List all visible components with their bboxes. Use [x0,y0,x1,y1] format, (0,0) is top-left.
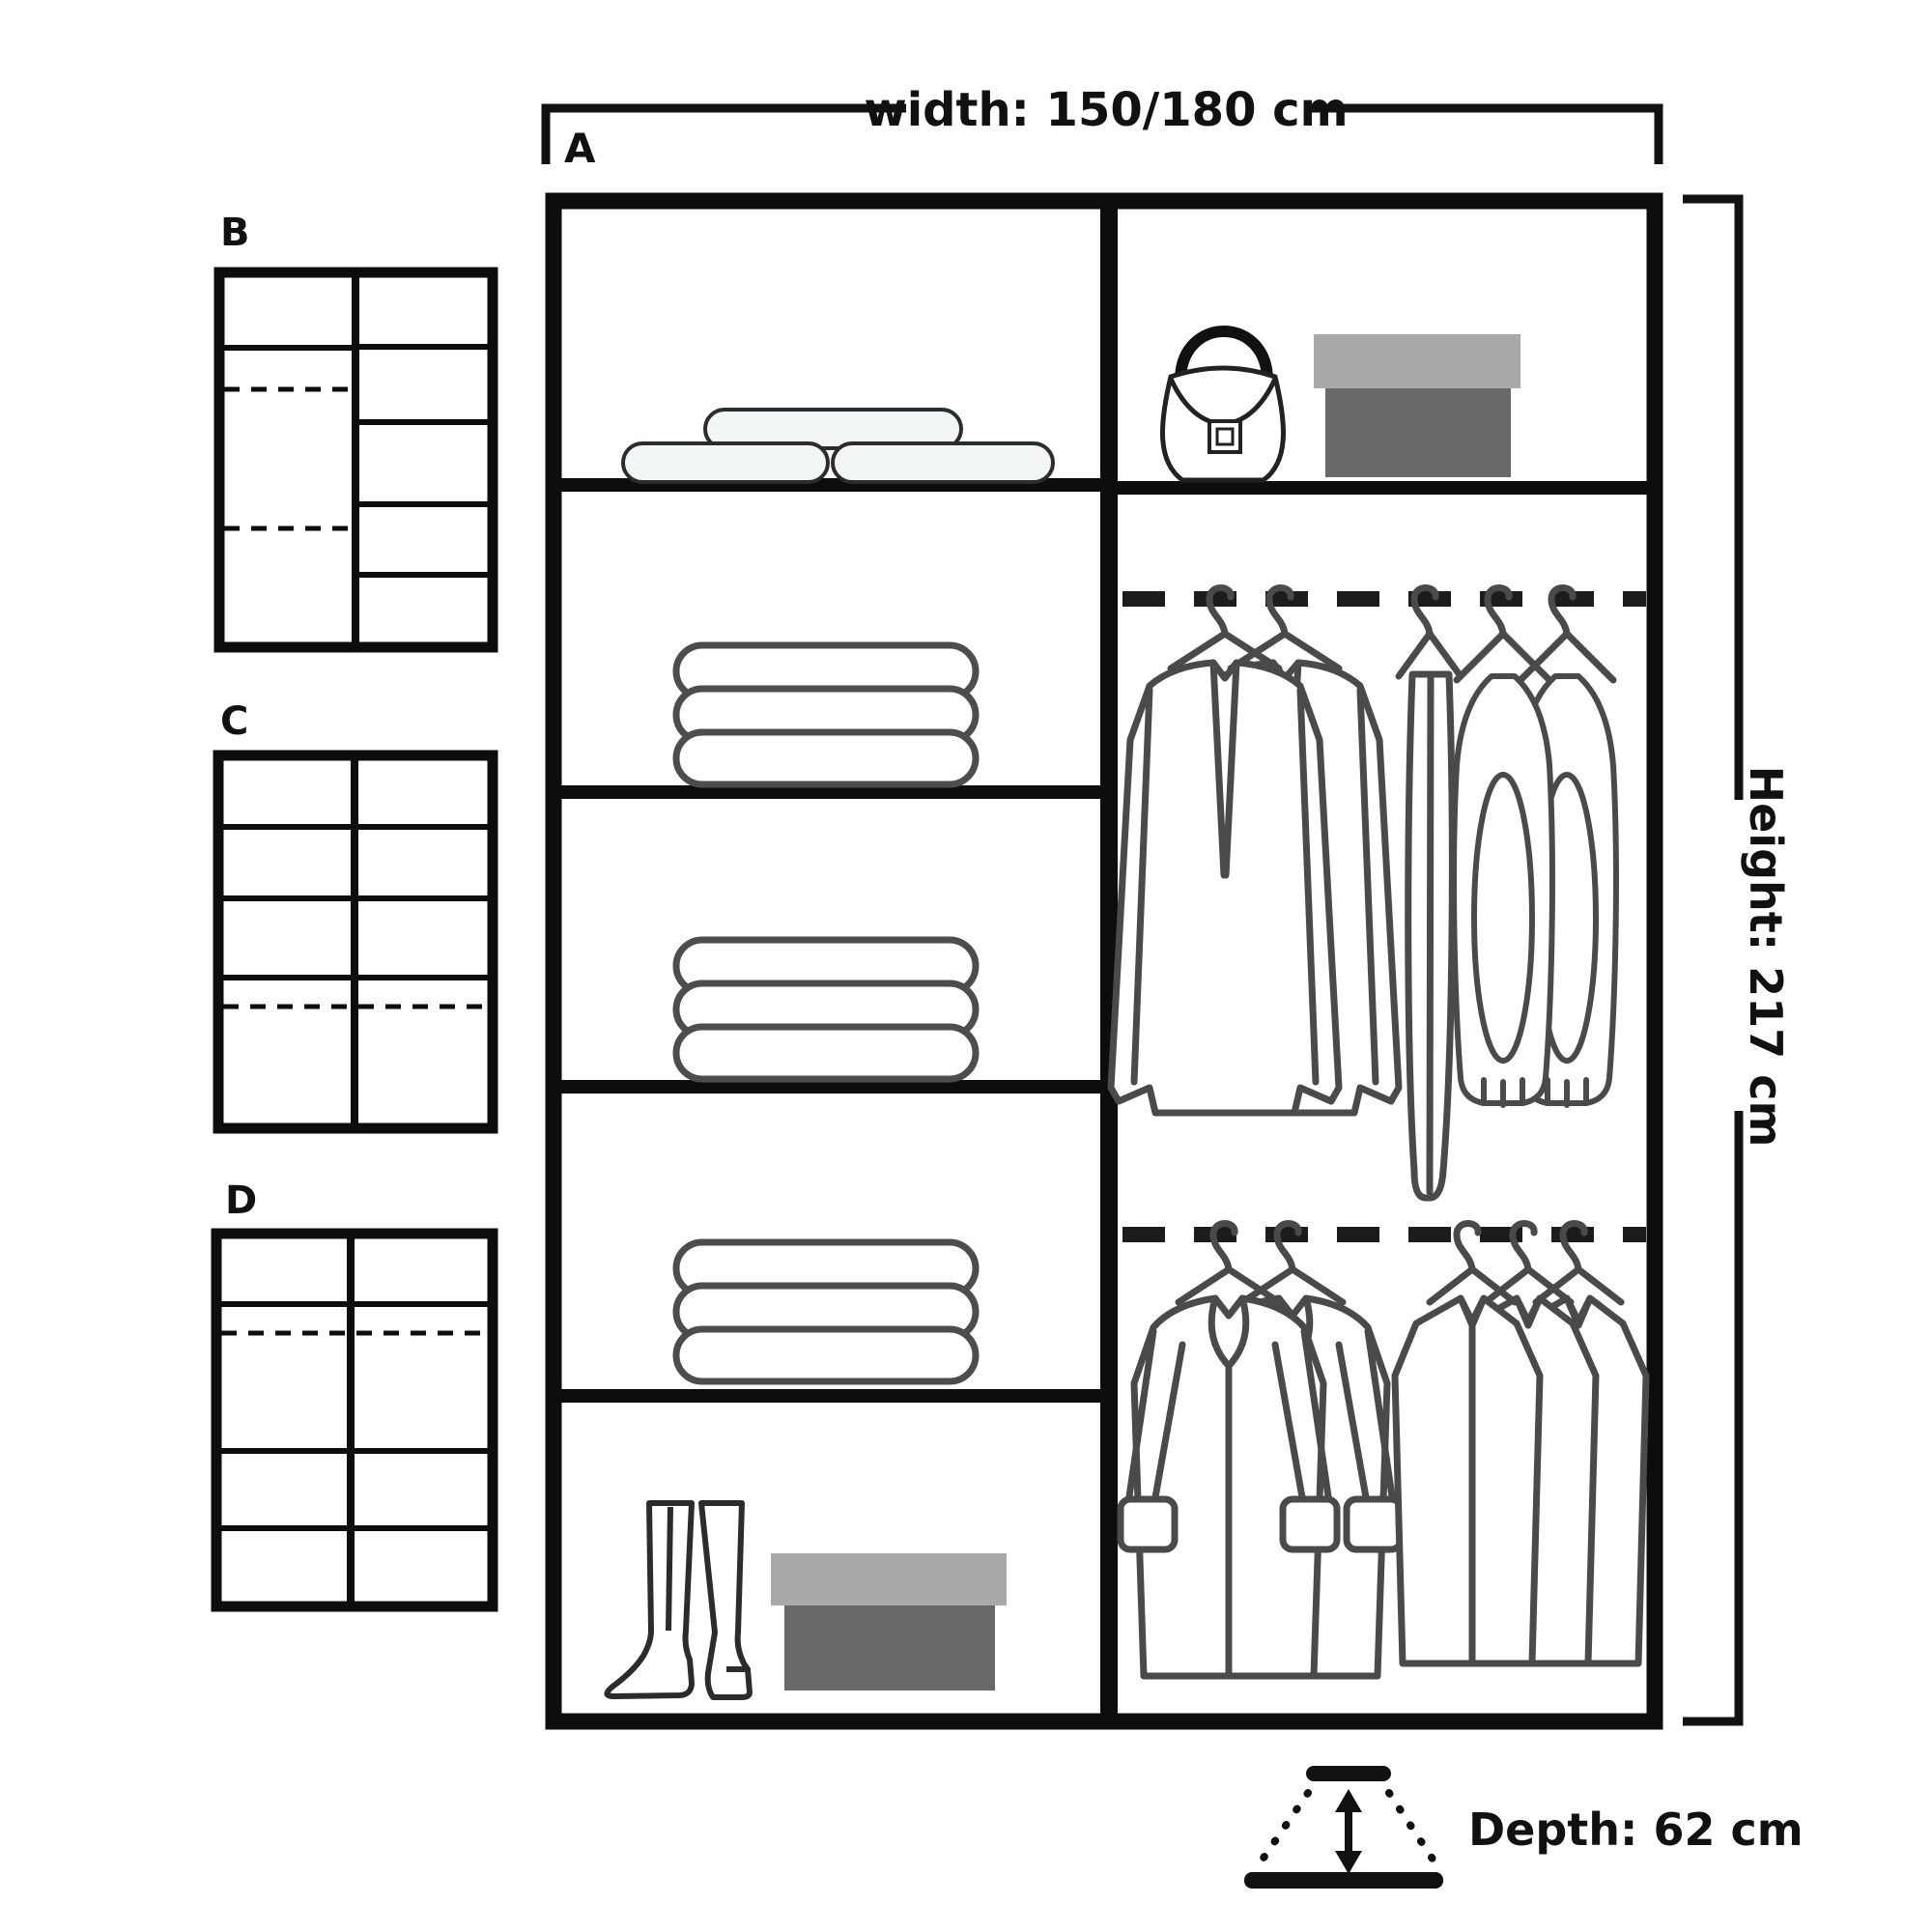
variant-d-label: D [225,1179,257,1223]
wardrobe-diagram: width: 150/180 cm A Height: 217 cm [0,0,1932,1932]
variant-c-label: C [220,699,248,744]
folded-towels-icon [676,1242,976,1381]
width-dim-right-bracket [1306,108,1659,164]
width-dimension-label: width: 150/180 cm [864,83,1348,137]
depth-arrows-icon [1244,1766,1443,1889]
shoebox-icon [771,1553,1007,1690]
folded-towels-icon [676,645,976,784]
height-dimension-label: Height: 217 cm [1740,766,1792,1148]
variant-d-thumbnail: D [216,1179,493,1606]
variant-c-thumbnail: C [218,699,493,1128]
wardrobe-diagram-svg: width: 150/180 cm A Height: 217 cm [0,0,1932,1932]
wardrobe-a [554,201,1655,1721]
shoebox-icon [1314,334,1520,477]
depth-dimension: Depth: 62 cm [1244,1766,1804,1889]
height-dim-top-bracket [1683,199,1739,800]
variant-a-label: A [564,125,596,172]
folded-towels-icon [676,940,976,1079]
variant-b-thumbnail: B [219,211,493,647]
depth-dimension-label: Depth: 62 cm [1468,1804,1804,1856]
height-dimension [1683,199,1739,1721]
variant-b-label: B [220,211,250,255]
width-dim-left-bracket [546,108,906,164]
height-dim-bottom-bracket [1683,1111,1739,1721]
